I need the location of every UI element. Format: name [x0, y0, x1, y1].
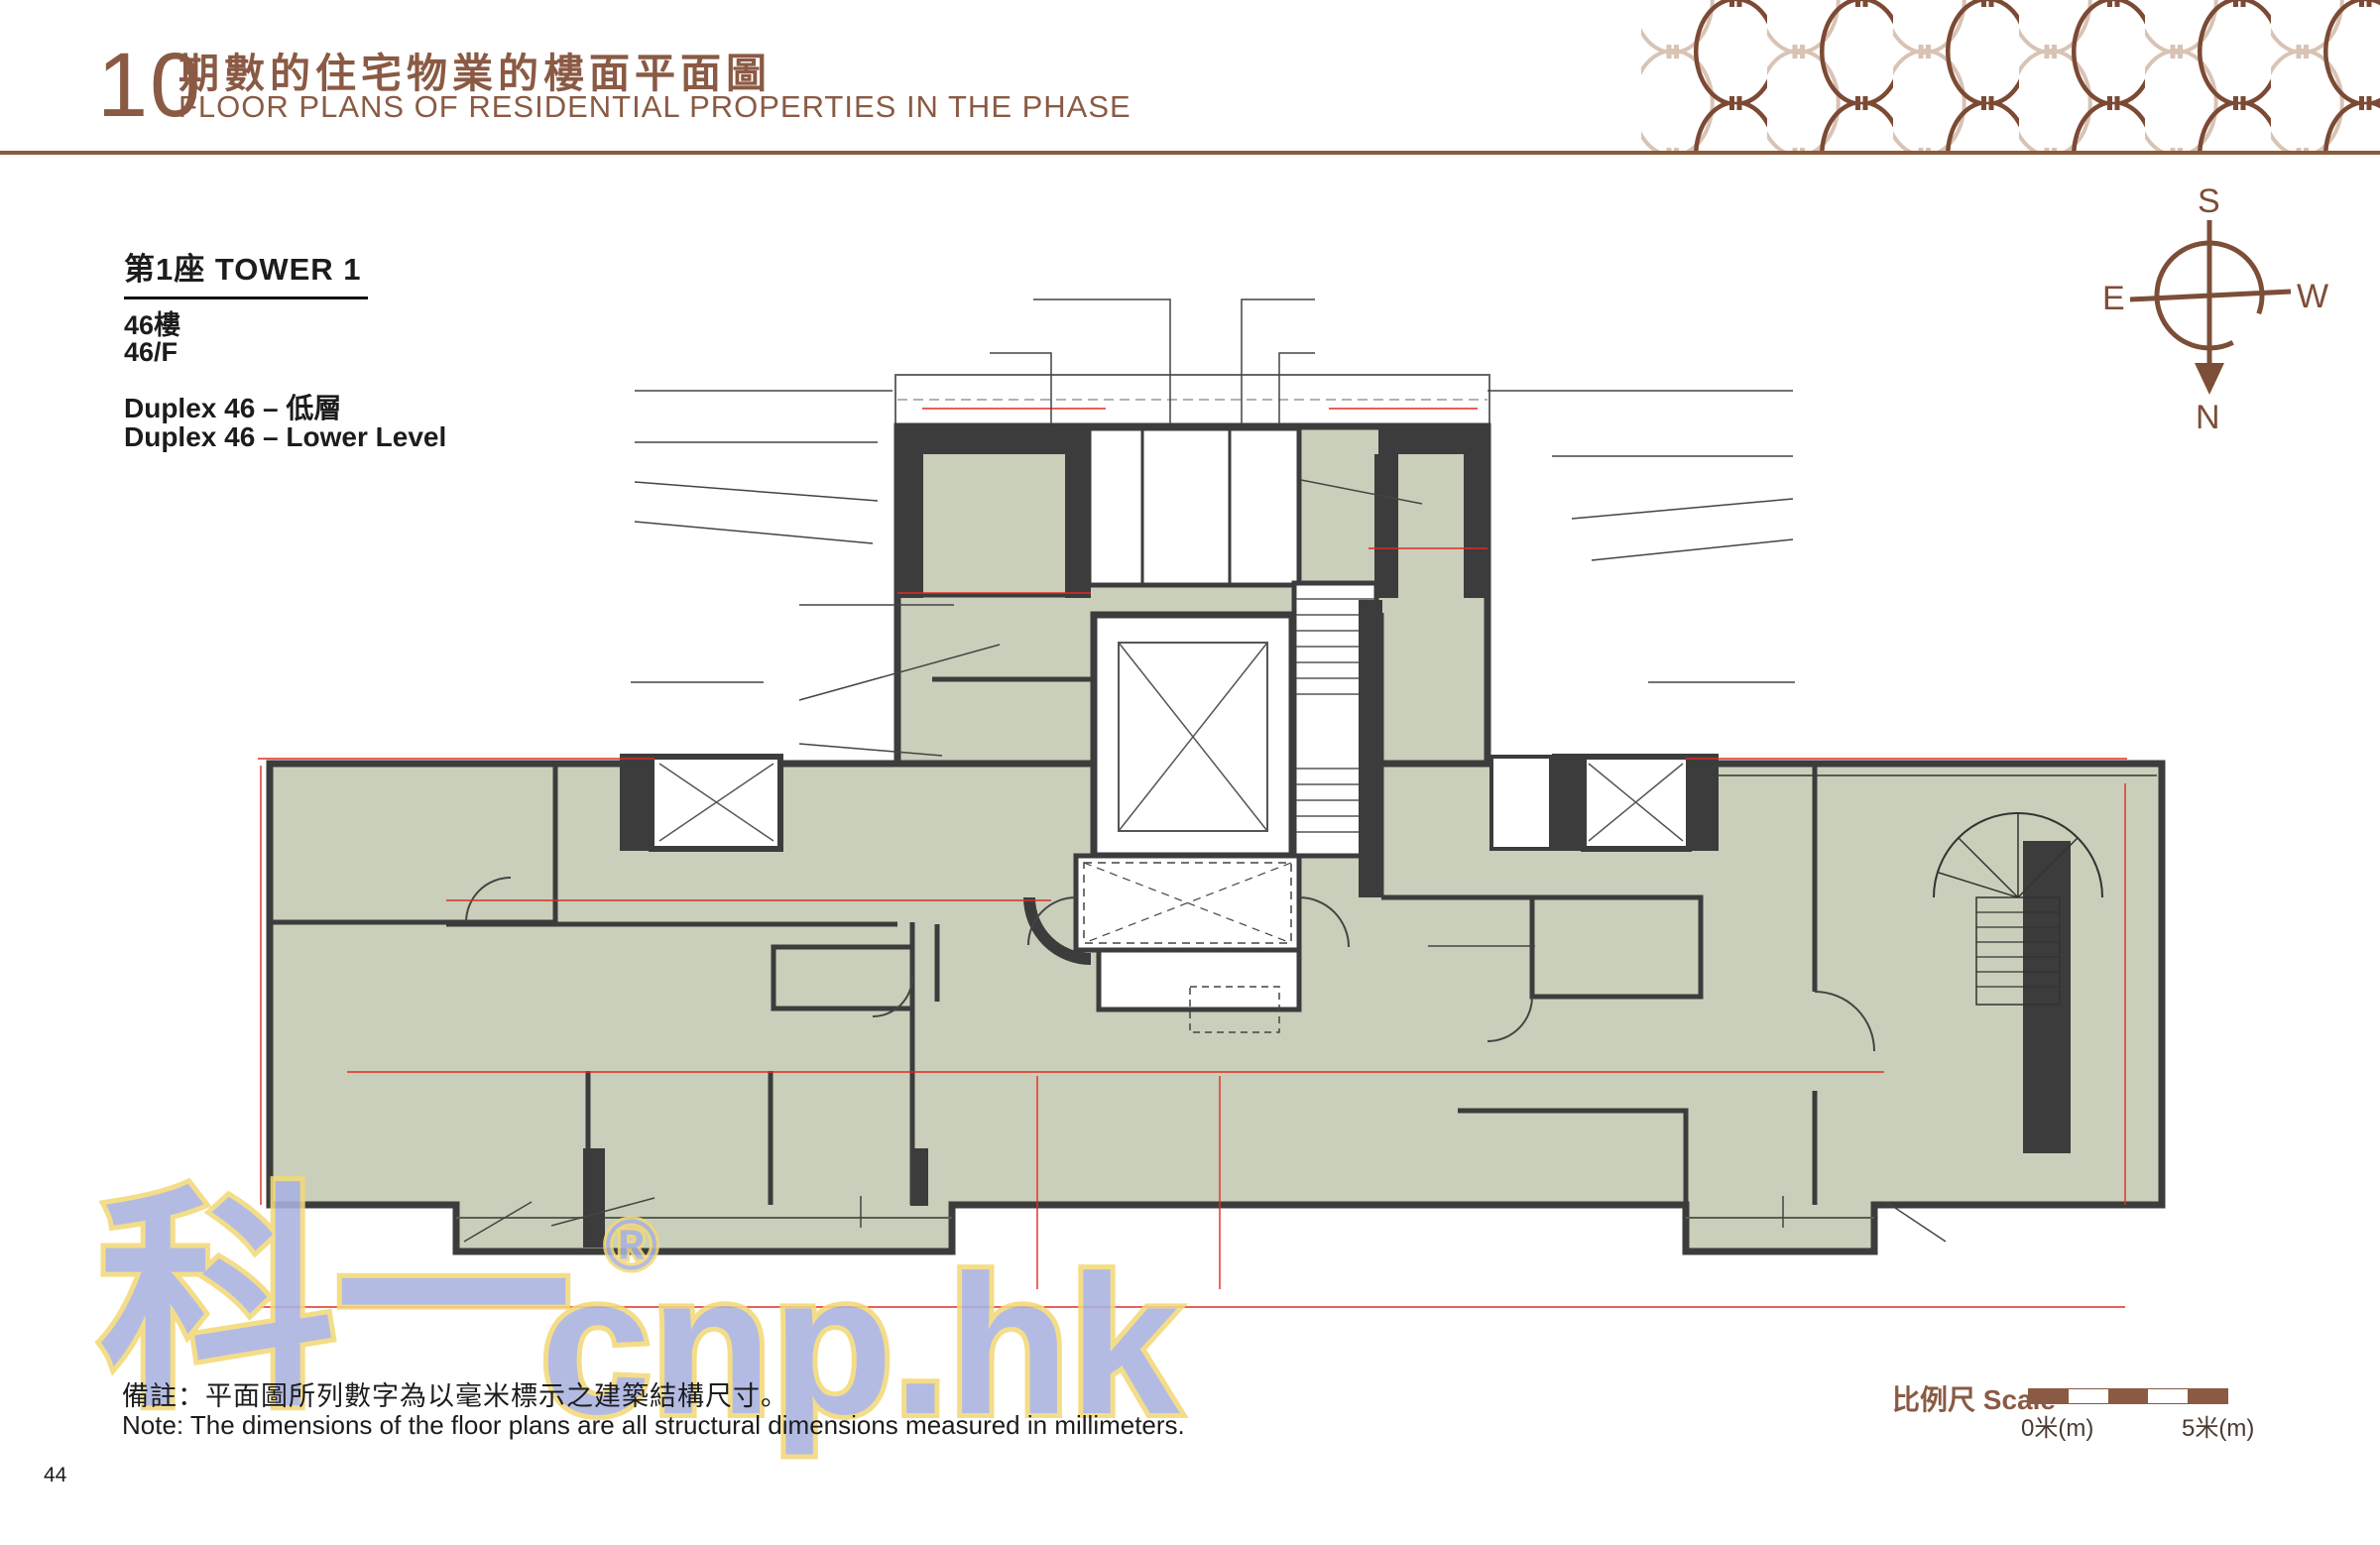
note-en: Note: The dimensions of the floor plans …	[122, 1410, 1185, 1441]
scale-seg	[2069, 1389, 2108, 1403]
scale-seg	[2108, 1389, 2148, 1403]
note-zh: 備註：平面圖所列數字為以毫米標示之建築結構尺寸。	[122, 1374, 788, 1413]
scale-bar	[2028, 1388, 2228, 1404]
scale-seg	[2148, 1389, 2188, 1403]
scale-zero-label: 0米(m)	[2021, 1408, 2093, 1443]
brochure-page: { "header": {"section_no":"10","title_zh…	[0, 0, 2380, 1545]
page-number: 44	[44, 1464, 66, 1487]
scale-seg	[2029, 1389, 2069, 1403]
scale-five-label: 5米(m)	[2182, 1408, 2254, 1443]
scale-seg	[2188, 1389, 2227, 1403]
